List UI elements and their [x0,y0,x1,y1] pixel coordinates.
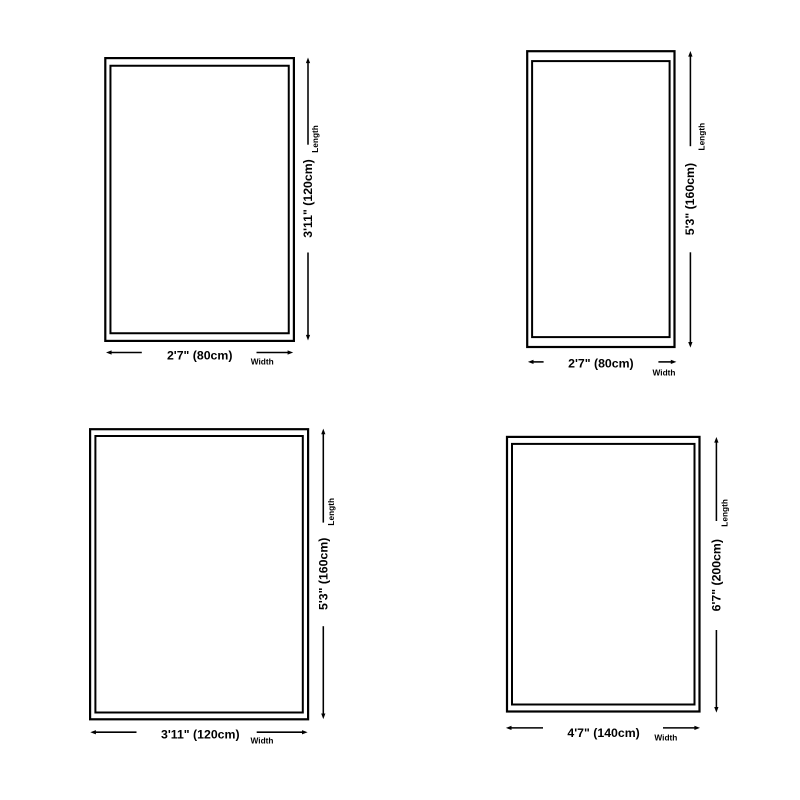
svg-text:Width: Width [251,357,274,367]
svg-text:5'3" (160cm): 5'3" (160cm) [683,163,697,235]
svg-text:Length: Length [310,125,320,153]
svg-text:3'11" (120cm): 3'11" (120cm) [161,728,240,742]
svg-text:2'7" (80cm): 2'7" (80cm) [167,348,233,362]
svg-text:3'11" (120cm): 3'11" (120cm) [301,159,315,238]
svg-text:Length: Length [697,123,707,151]
svg-text:4'7" (140cm): 4'7" (140cm) [567,726,639,740]
svg-text:Width: Width [251,735,274,745]
svg-text:Length: Length [720,499,730,527]
svg-text:6'7" (200cm): 6'7" (200cm) [709,539,723,611]
svg-text:2'7" (80cm): 2'7" (80cm) [568,357,634,371]
svg-text:Width: Width [654,732,677,742]
svg-text:Length: Length [326,498,336,526]
svg-text:Width: Width [653,368,676,378]
svg-text:5'3" (160cm): 5'3" (160cm) [316,538,330,610]
